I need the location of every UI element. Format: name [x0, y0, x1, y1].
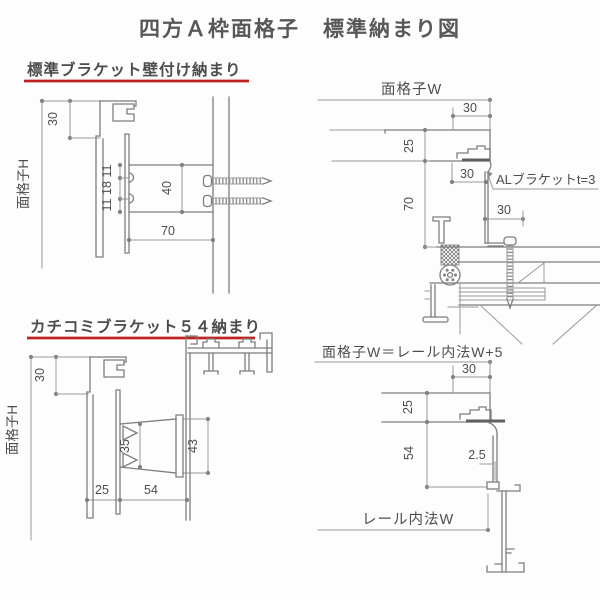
dim-label-18: 18	[100, 181, 114, 195]
grille-height-label: 面格子H	[5, 405, 20, 455]
shim-stack	[459, 288, 545, 300]
section-heading-std-bracket: 標準ブラケット壁付け納まり	[24, 60, 249, 81]
dim-label-40: 40	[160, 181, 174, 195]
t-bracket	[433, 217, 450, 243]
sill-assembly	[423, 217, 600, 344]
frame-profile	[96, 101, 213, 257]
wall-lines	[213, 97, 229, 293]
grille-width-formula-label: 面格子W＝レール内法W+5	[322, 344, 503, 360]
wall-hatch-block	[441, 245, 459, 265]
dimension-labels: 30 25 30 30 70	[402, 101, 511, 217]
wood-section-marks	[480, 305, 597, 344]
dim-label-70: 70	[161, 224, 175, 238]
dim-label-2-5: 2.5	[468, 448, 485, 462]
dimension-lines	[315, 360, 495, 532]
dim-label-54: 54	[402, 446, 416, 460]
grille-height-label: 面格子H	[16, 159, 31, 209]
dim-label-11-top: 11	[100, 164, 114, 177]
wedge-mark-upper	[123, 426, 137, 440]
rail-inner-width-label: レール内法W	[362, 511, 454, 528]
dim-label-30: 30	[46, 112, 60, 126]
heading-kachikomi: カチコミブラケット５４納まり	[30, 317, 261, 336]
dim-label-30-bracket: 30	[460, 167, 474, 181]
wood-section-mark	[518, 263, 544, 283]
dim-label-70: 70	[402, 197, 416, 211]
al-bracket-note-label: ALブラケットt=3	[496, 172, 595, 187]
dim-label-25: 25	[95, 483, 109, 497]
rail-profile	[487, 485, 524, 572]
dim-label-30: 30	[462, 362, 476, 376]
diagram-std-bracket-wall-mount: 面格子H 30 11 18 11 40 70	[16, 97, 271, 293]
grille-width-label: 面格子W	[381, 81, 442, 98]
dim-label-54: 54	[144, 483, 158, 497]
section-heading-kachikomi: カチコミブラケット５４納まり	[27, 317, 261, 338]
dim-label-30-anchor: 30	[497, 203, 511, 217]
anchor-cross-section	[440, 265, 460, 285]
dim-label-30-top: 30	[463, 101, 477, 115]
dim-label-43: 43	[186, 439, 200, 453]
technical-drawing-canvas: 四方Ａ枠面格子 標準納まり図 標準ブラケット壁付け納まり	[0, 0, 600, 600]
hook-bracket	[487, 422, 499, 489]
al-bracket-note: ALブラケットt=3	[487, 171, 598, 189]
diagram-kachikomi-bracket: 面格子H 30 35 43 25 54	[5, 333, 272, 540]
frame-profile	[385, 130, 490, 161]
al-bracket	[457, 146, 503, 246]
dim-label-25: 25	[402, 139, 416, 153]
page-title: 四方Ａ枠面格子 標準納まり図	[139, 17, 461, 41]
dimension-lines	[40, 99, 215, 268]
clip-bracket	[460, 407, 505, 421]
lower-bracket	[423, 283, 478, 334]
dimension-lines	[318, 98, 525, 249]
heading-std-bracket: 標準ブラケット壁付け納まり	[27, 60, 242, 79]
diagram-plan-bottom: 面格子W＝レール内法W+5	[315, 344, 524, 572]
wedge-mark-lower	[123, 453, 137, 467]
dim-label-25: 25	[401, 400, 415, 414]
dim-label-11-bottom: 11	[100, 198, 114, 211]
dimension-labels: 30 25 54 2.5 レール内法W	[362, 362, 486, 528]
drawing-page: 四方Ａ枠面格子 標準納まり図 標準ブラケット壁付け納まり	[0, 0, 600, 600]
dim-label-30: 30	[33, 368, 47, 382]
dimension-labels: 面格子H 30 35 43 25 54	[5, 368, 200, 497]
diagram-plan-top: 面格子W	[318, 81, 600, 344]
dim-label-35: 35	[118, 439, 132, 453]
rail-profile	[186, 333, 272, 520]
frame-profile	[382, 393, 490, 422]
